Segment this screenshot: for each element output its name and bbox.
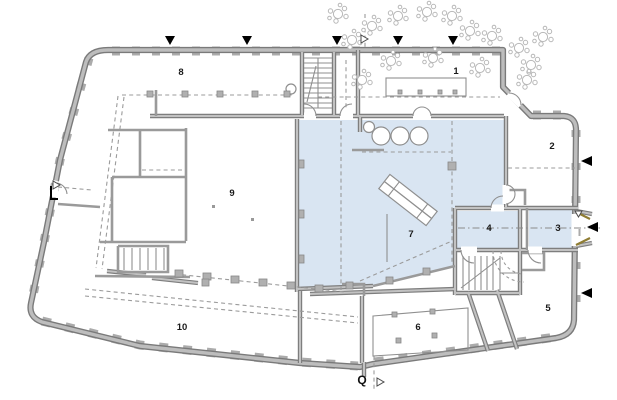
tree-icon [342,29,363,49]
tree-icon [417,1,438,21]
room-3-highlight [529,210,577,249]
room-label-4: 4 [486,223,492,234]
tree-icon [381,50,402,70]
room-label-8: 8 [178,67,183,78]
room-label-5: 5 [545,303,551,314]
tree-icon [509,37,530,57]
view-arrow-down-icon [393,36,403,45]
section-label-q: Q [357,373,366,387]
view-arrow-down-icon [165,36,175,45]
room-label-7: 7 [408,229,413,240]
view-arrow-down-icon [242,36,252,45]
view-arrow-left-icon [587,222,598,232]
floor-plan-canvas: 1 2 3 4 5 6 7 8 9 10 Q [0,0,617,400]
tree-icon [482,25,503,45]
view-arrow-left-icon [581,288,592,298]
room-label-1: 1 [453,66,459,77]
tree-icon [352,69,373,89]
tree-icon [533,26,554,46]
trees [328,1,554,89]
tree-icon [442,5,463,25]
tree-icon [388,5,409,25]
south-stair-treads [461,256,518,290]
room-label-9: 9 [229,188,234,199]
floor-plan-page: 1 2 3 4 5 6 7 8 9 10 Q [0,0,617,400]
tree-icon [328,3,349,23]
tree-icon [470,57,491,77]
view-arrow-down-icon [448,36,458,45]
view-arrow-left-icon [581,156,592,166]
main-stair-treads [304,58,332,108]
room-label-10: 10 [177,322,188,333]
section-pointer-icon [377,378,384,386]
tree-icon [460,20,481,40]
service-stair-treads [124,248,164,270]
room-label-3: 3 [555,223,560,234]
room-label-6: 6 [415,322,420,333]
view-arrow-down-icon [332,36,342,45]
room-label-2: 2 [549,141,554,152]
